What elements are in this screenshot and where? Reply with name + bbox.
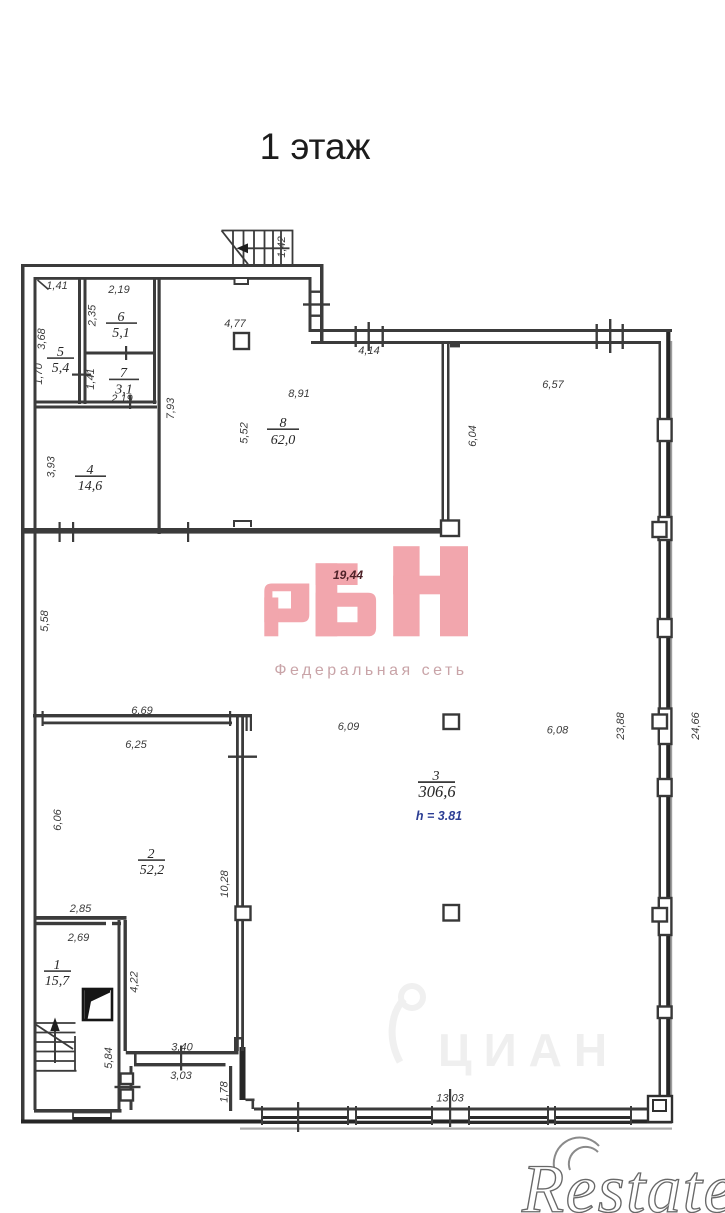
svg-text:1,78: 1,78 [219,1080,231,1102]
svg-text:52,2: 52,2 [140,863,165,878]
svg-text:5,1: 5,1 [112,326,130,341]
svg-text:4,77: 4,77 [224,318,246,330]
svg-text:23,88: 23,88 [615,711,627,740]
svg-text:2,35: 2,35 [87,304,99,327]
svg-text:2,19: 2,19 [107,284,129,296]
svg-text:6,57: 6,57 [542,379,564,391]
svg-text:1,70: 1,70 [33,362,45,384]
svg-text:62,0: 62,0 [271,433,296,448]
svg-text:15,7: 15,7 [45,974,71,989]
svg-text:5,84: 5,84 [103,1047,115,1068]
svg-text:ЦИАН: ЦИАН [438,1024,619,1076]
svg-text:6,08: 6,08 [547,725,569,737]
svg-text:3,40: 3,40 [171,1042,193,1054]
svg-text:2,69: 2,69 [67,932,89,944]
svg-text:14,6: 14,6 [78,479,103,494]
svg-text:7,93: 7,93 [165,397,177,419]
svg-text:h = 3.81: h = 3.81 [416,809,462,823]
svg-text:6,04: 6,04 [467,425,479,446]
svg-text:24,66: 24,66 [690,711,702,740]
svg-text:2,85: 2,85 [69,903,92,915]
svg-text:19,44: 19,44 [333,568,363,582]
svg-text:Restate: Restate [521,1151,725,1213]
svg-text:4,22: 4,22 [129,971,141,992]
svg-text:1,41: 1,41 [85,368,97,389]
svg-text:1 этаж: 1 этаж [260,126,371,167]
svg-text:8,91: 8,91 [288,388,309,400]
svg-text:Федеральная сеть: Федеральная сеть [274,662,467,679]
svg-text:1,41: 1,41 [46,280,67,292]
svg-text:5,4: 5,4 [52,361,70,376]
svg-text:10,28: 10,28 [219,869,231,897]
svg-text:6,06: 6,06 [52,808,64,830]
svg-text:1,42: 1,42 [276,236,288,257]
svg-text:6,09: 6,09 [338,721,359,733]
svg-text:306,6: 306,6 [417,782,456,801]
svg-text:5,58: 5,58 [39,609,51,631]
svg-text:3,93: 3,93 [46,455,58,477]
svg-text:5,52: 5,52 [239,422,251,443]
svg-text:3,68: 3,68 [36,327,48,349]
svg-text:3,03: 3,03 [170,1070,192,1082]
svg-text:4,14: 4,14 [358,345,379,357]
svg-text:6,25: 6,25 [125,739,147,751]
svg-text:6,69: 6,69 [131,705,152,717]
